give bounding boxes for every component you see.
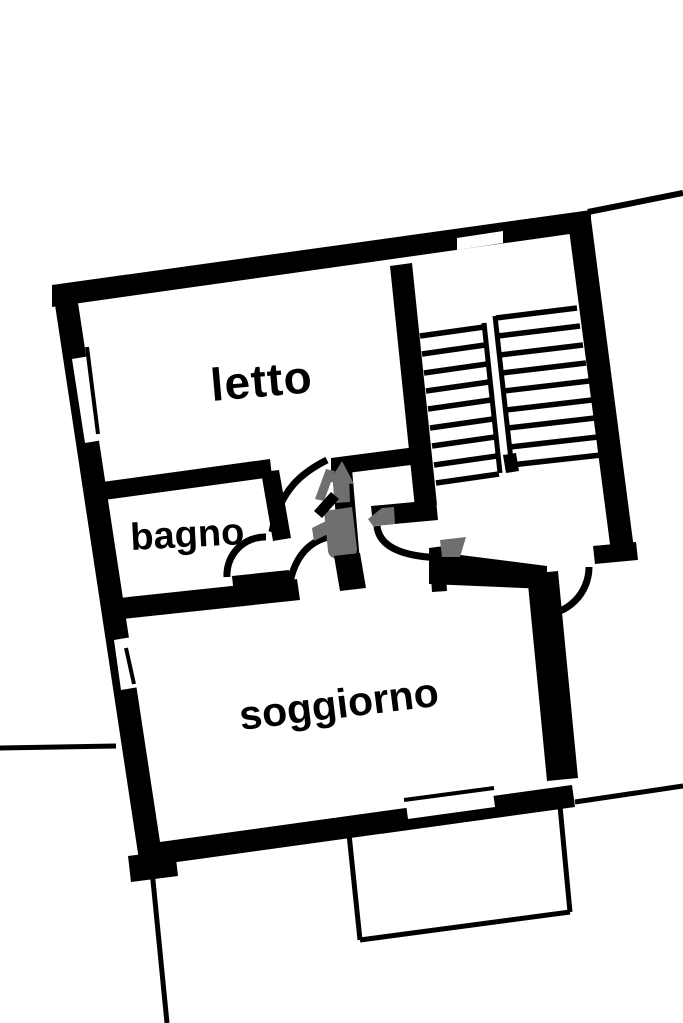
svg-text:bagno: bagno (129, 511, 245, 559)
svg-text:letto: letto (208, 350, 314, 411)
